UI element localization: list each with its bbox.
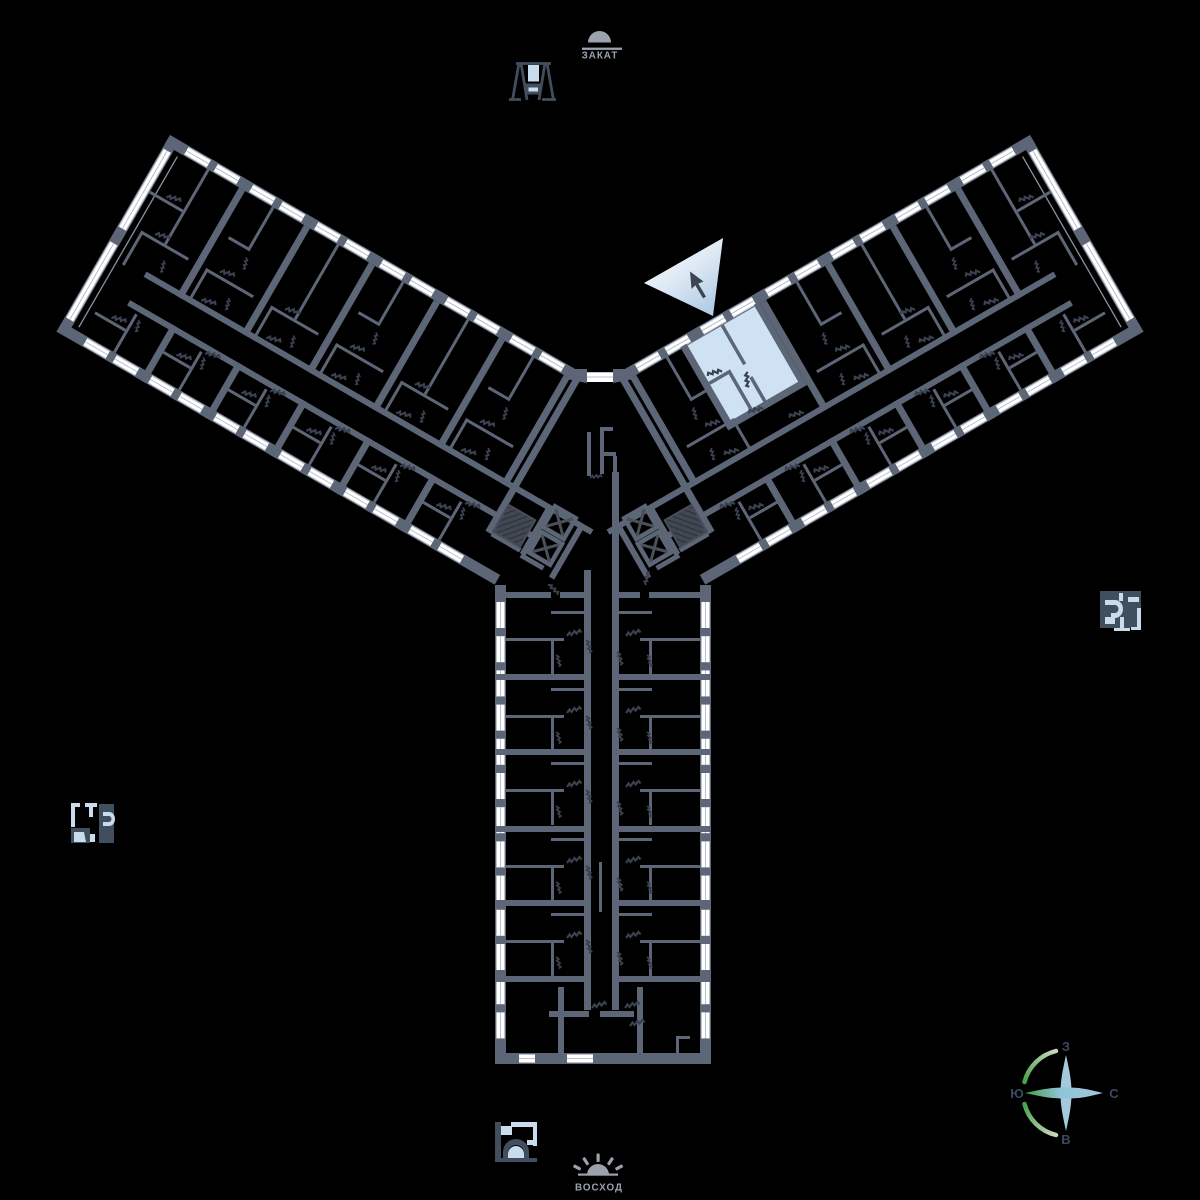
svg-text:З: З [1062,1039,1070,1054]
svg-text:ЗАКАТ: ЗАКАТ [582,51,619,62]
svg-text:С: С [1109,1086,1119,1101]
svg-text:Ю: Ю [1010,1086,1023,1101]
svg-text:В: В [1061,1132,1070,1147]
svg-text:ВОСХОД: ВОСХОД [575,1183,623,1194]
